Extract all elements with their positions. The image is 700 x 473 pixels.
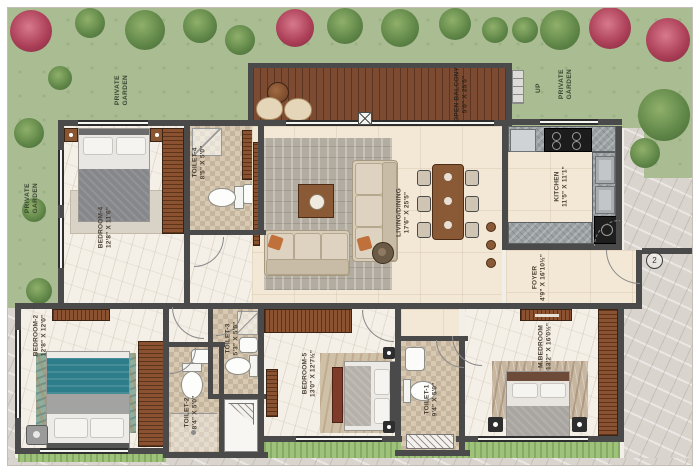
- wall-plate: [486, 222, 496, 232]
- tree: [225, 25, 255, 55]
- flower-tree: [589, 7, 631, 49]
- dining-chair: [417, 170, 431, 186]
- entry-number-marker: 2: [646, 252, 663, 269]
- wardrobe: [162, 128, 184, 234]
- room-name: OPEN BALCONY: [454, 54, 462, 134]
- wall: [258, 303, 264, 458]
- room-dims: 5'0" X 25'5": [462, 54, 470, 134]
- room-bedroom5: [264, 309, 395, 436]
- dining-chair: [417, 196, 431, 212]
- steps: [512, 70, 524, 104]
- wall: [58, 120, 64, 309]
- wardrobe: [598, 309, 618, 436]
- tree: [630, 138, 660, 168]
- window: [540, 119, 598, 125]
- wall: [618, 303, 624, 442]
- room-name: KITCHEN: [554, 146, 562, 226]
- window: [296, 436, 382, 442]
- sofa-three-seater: [264, 230, 350, 276]
- nightstand: [488, 417, 503, 432]
- seat-cushion: [294, 233, 321, 261]
- wall: [248, 63, 512, 68]
- label-bedroom4: BEDROOM-4 12'8" X 11'6": [98, 187, 115, 267]
- wall-plate: [486, 258, 496, 268]
- tree: [75, 8, 105, 38]
- room-dims: 8'5" X 5'0": [200, 122, 208, 202]
- pillow: [374, 369, 390, 395]
- seat-cushion: [355, 195, 383, 227]
- seat-cushion: [355, 163, 383, 195]
- plate: [444, 197, 452, 205]
- room-dims: 5'3" X 5'0": [233, 298, 241, 378]
- toilet: [208, 188, 236, 207]
- wall: [163, 303, 169, 458]
- lamp: [155, 133, 159, 137]
- fridge: [510, 129, 536, 152]
- plate: [444, 221, 452, 229]
- label-bedroom2: BEDROOM-2 12'8" X 12'0": [33, 295, 50, 375]
- room-dims: 4'9" X 16'10½": [540, 237, 548, 317]
- label-foyer: FOYER 4'9" X 16'10½": [532, 237, 549, 317]
- label-toilet1: TOILET-1 9'4" X 5'0": [424, 359, 441, 439]
- nightstand: [572, 417, 587, 432]
- room-dims: 12'8" X 11'6": [106, 187, 114, 267]
- lounge-chair: [284, 98, 312, 121]
- coffee-table: [298, 184, 334, 218]
- burner: [572, 132, 581, 141]
- label-toilet3: TOILET-3 5'3" X 5'0": [225, 298, 242, 378]
- nightstand: [64, 128, 78, 142]
- room-name: TOILET-4: [192, 122, 200, 202]
- room-open-balcony: [372, 68, 506, 120]
- flower-tree: [10, 10, 52, 52]
- room-dims: 13'0" X 12'7½": [310, 333, 318, 413]
- wall: [248, 63, 253, 126]
- wall-plate: [486, 240, 496, 250]
- pillow: [512, 383, 538, 398]
- plate: [444, 173, 452, 181]
- dining-table: [432, 164, 464, 240]
- lamp: [493, 422, 498, 427]
- oven: [594, 216, 618, 244]
- kitchen-counter-bottom: [508, 222, 592, 244]
- utility-shaft: [224, 399, 258, 452]
- wardrobe: [138, 341, 164, 447]
- tree: [439, 8, 471, 40]
- lounge-chair: [256, 97, 283, 120]
- wall: [219, 342, 224, 458]
- tree: [14, 118, 44, 148]
- lobby-bedroom4: [190, 235, 258, 303]
- pillow: [54, 418, 88, 438]
- room-dims: 9'4" X 5'0": [432, 359, 440, 439]
- dining-chair: [465, 222, 479, 238]
- pillow: [116, 137, 146, 155]
- tree: [48, 66, 72, 90]
- room-name: TOILET-2: [184, 372, 192, 452]
- wall: [395, 303, 401, 442]
- tray: [309, 194, 325, 210]
- tree: [482, 17, 508, 43]
- room-name: TOILET-1: [424, 359, 432, 439]
- wall: [163, 342, 225, 347]
- dining-chair: [417, 222, 431, 238]
- side-table-top: [378, 248, 386, 256]
- label-toilet2: TOILET-2 8'4" X 5'0": [184, 372, 201, 452]
- wall: [506, 244, 618, 250]
- label-balcony: OPEN BALCONY 5'0" X 25'5": [454, 54, 471, 134]
- label-up: UP: [535, 70, 543, 106]
- dresser: [52, 309, 110, 321]
- frame-top: [0, 0, 700, 8]
- shaft-hatch: [228, 403, 254, 425]
- headboard: [79, 129, 149, 135]
- blanket-fold: [47, 394, 129, 414]
- wall: [258, 126, 264, 235]
- bed: [46, 351, 130, 451]
- label-living: LIVING/DINING 17'6" X 25'5": [396, 172, 413, 252]
- room-foyer: [506, 250, 636, 303]
- room-living-dining: [252, 126, 502, 303]
- wall: [186, 230, 266, 235]
- sink: [239, 337, 258, 353]
- lamp: [387, 425, 391, 429]
- room-name: BEDROOM-4: [98, 187, 106, 267]
- frame-right: [692, 0, 700, 473]
- window: [78, 120, 148, 126]
- room-bedroom4: [64, 126, 184, 303]
- pillow: [83, 137, 113, 155]
- window: [58, 218, 64, 268]
- nightstand: [383, 347, 395, 359]
- backrest: [266, 259, 349, 275]
- oven-dial: [601, 224, 613, 236]
- window: [40, 448, 128, 454]
- side-unit: [26, 425, 48, 445]
- desk: [266, 369, 278, 417]
- room-dims: 13'2" X 16'0½": [546, 306, 554, 386]
- wall: [616, 126, 622, 250]
- lamp: [577, 422, 582, 427]
- duvet: [47, 358, 129, 394]
- wall: [208, 303, 213, 399]
- wall: [163, 452, 268, 458]
- room-name: TOILET-3: [225, 298, 233, 378]
- bench: [332, 367, 343, 423]
- floor-plan: BEDROOM-4 12'8" X 11'6" TOILET-4 8'5" X …: [0, 0, 700, 473]
- tree: [327, 8, 363, 44]
- duvet: [345, 366, 371, 426]
- label-bedroom5: BEDROOM-5 13'0" X 12'7½": [302, 333, 319, 413]
- label-private-garden-top-right: PRIVATE GARDEN: [558, 66, 574, 102]
- room-dims: 11'5" X 11'1": [562, 146, 570, 226]
- wall: [502, 126, 508, 250]
- lamp: [387, 351, 391, 355]
- duct-box: [358, 112, 372, 125]
- sink-basin: [595, 186, 615, 214]
- tree: [540, 10, 580, 50]
- room-name: BEDROOM-2: [33, 295, 41, 375]
- sink: [405, 347, 425, 371]
- room-deck: [253, 68, 372, 120]
- flower-tree: [646, 18, 690, 62]
- lobby-bedrooms: [169, 309, 208, 342]
- dining-chair: [465, 170, 479, 186]
- room-dims: 8'4" X 5'0": [192, 372, 200, 452]
- room-dims: 12'8" X 12'0": [41, 295, 49, 375]
- label-private-garden-top-left: PRIVATE GARDEN: [114, 72, 130, 108]
- lamp: [69, 133, 73, 137]
- seat-cushion: [321, 233, 348, 261]
- burner: [552, 132, 561, 141]
- exterior-paving-left: [8, 305, 15, 467]
- label-master-bedroom: M.BEDROOM 13'2" X 16'0½": [538, 306, 555, 386]
- window: [15, 330, 21, 418]
- wall: [636, 250, 642, 309]
- wall: [459, 336, 465, 450]
- wall: [184, 126, 190, 309]
- frame-left: [0, 0, 8, 473]
- tree: [125, 10, 165, 50]
- flower-tree: [276, 9, 314, 47]
- room-name: LIVING/DINING: [396, 172, 404, 252]
- window: [478, 436, 588, 442]
- label-toilet4: TOILET-4 8'5" X 5'0": [192, 122, 209, 202]
- label-kitchen: KITCHEN 11'5" X 11'1": [554, 146, 571, 226]
- side-unit-dial: [33, 431, 40, 438]
- tree: [512, 17, 538, 43]
- room-dims: 17'6" X 25'5": [404, 172, 412, 252]
- wall: [395, 450, 470, 456]
- burner: [572, 141, 581, 150]
- wardrobe: [264, 309, 352, 333]
- dining-chair: [465, 196, 479, 212]
- tree: [381, 9, 419, 47]
- wall: [395, 336, 468, 341]
- duvet: [507, 406, 569, 436]
- nightstand: [383, 421, 395, 433]
- window: [58, 150, 64, 205]
- side-table: [372, 242, 394, 264]
- pillow: [90, 418, 124, 438]
- frame-bottom: [0, 465, 700, 473]
- sink-basin: [595, 156, 615, 184]
- label-private-garden-left: PRIVATE GARDEN: [24, 180, 40, 216]
- tree: [183, 9, 217, 43]
- tree: [638, 89, 690, 141]
